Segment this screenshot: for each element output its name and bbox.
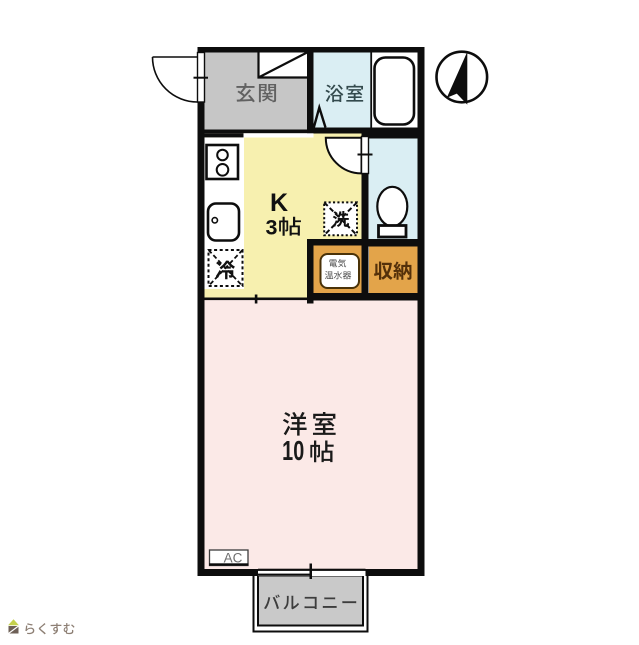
- svg-text:AC: AC: [224, 551, 243, 566]
- svg-text:K: K: [270, 189, 288, 217]
- svg-text:3: 3: [266, 216, 278, 240]
- svg-text:10: 10: [282, 436, 304, 467]
